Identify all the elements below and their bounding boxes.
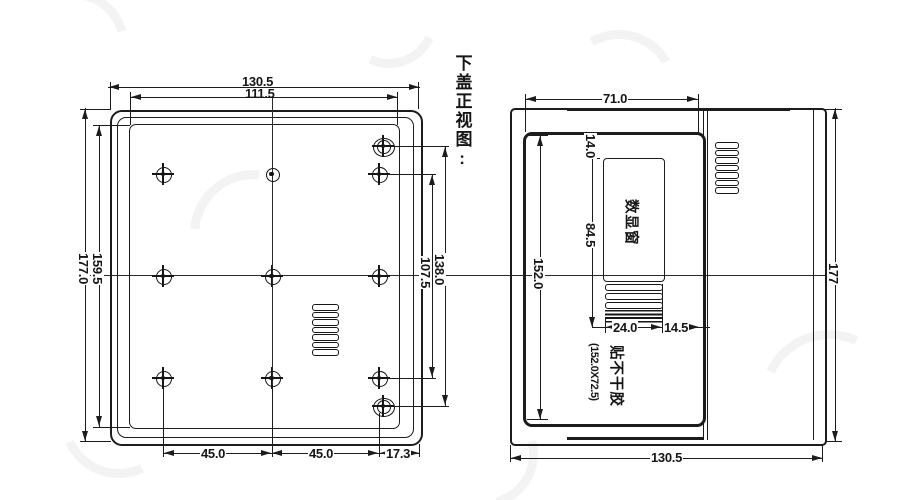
arrowhead — [272, 450, 282, 456]
arrowhead — [368, 450, 378, 456]
arrowhead — [689, 324, 699, 330]
arrowhead — [442, 147, 448, 157]
dim-overall-width-label: 130.5 — [650, 451, 683, 464]
vent-slot — [715, 150, 739, 157]
dim-window-width-label: 24.0 — [612, 321, 638, 334]
arrowhead — [511, 455, 521, 461]
extension-line — [527, 419, 548, 420]
extension-line — [392, 406, 449, 407]
right-edge-inner-line — [813, 110, 814, 440]
arrowhead — [96, 126, 102, 136]
arrowhead — [832, 431, 838, 441]
dim-panel-height-label: 152.0 — [532, 257, 545, 290]
dim-top-label: 71.0 — [602, 92, 628, 105]
panel-divider-line — [707, 110, 708, 440]
arrowhead — [96, 416, 102, 426]
vent-slot — [715, 165, 739, 172]
extension-line — [419, 444, 420, 457]
extension-line — [698, 94, 699, 132]
dim-window-offset-label: 14.0 — [584, 133, 597, 159]
extension-line — [163, 385, 164, 457]
vent-slot — [715, 172, 739, 179]
extension-line — [388, 378, 436, 379]
vent-slot — [715, 187, 739, 194]
extension-line — [272, 385, 273, 457]
vent-slot — [605, 293, 663, 300]
vent-slot — [312, 342, 339, 349]
arrowhead — [589, 317, 595, 327]
arrowhead — [526, 96, 536, 102]
extension-line — [822, 445, 823, 462]
arrowhead — [429, 175, 435, 185]
arrowhead — [131, 94, 141, 100]
dim-window-margin-label: 14.5 — [663, 321, 689, 334]
dim-right-outer-label: 138.0 — [433, 253, 446, 286]
arrowhead — [832, 109, 838, 119]
sticker-size-label: (152.0X72.5) — [588, 342, 599, 402]
vent-slot — [312, 312, 339, 319]
vent-slot — [715, 180, 739, 187]
vent-slot — [312, 327, 339, 334]
arrowhead — [164, 450, 174, 456]
drawing-canvas: 下盖正视图: 130.5 111.5 — [0, 0, 900, 500]
dim-bottom-mid-label: 45.0 — [308, 447, 334, 460]
dim-bottom-left-label: 45.0 — [200, 447, 226, 460]
dim-right-inner-label: 107.5 — [419, 256, 432, 289]
arrowhead — [537, 136, 543, 146]
arrowhead — [82, 109, 88, 119]
dim-bottom-right-label: 17.3 — [385, 447, 411, 460]
vent-slot — [312, 349, 339, 356]
bottom-lip — [567, 437, 703, 440]
dim-overall-height-label: 177 — [827, 262, 840, 285]
arrowhead — [651, 324, 661, 330]
arrowhead — [687, 96, 697, 102]
dim-left-outer-label: 177.0 — [77, 252, 90, 285]
top-lip — [567, 108, 790, 111]
dim-left-inner-label: 159.5 — [91, 252, 104, 285]
watermark — [808, 0, 900, 100]
watermark — [326, 0, 452, 82]
vent-slot — [605, 302, 663, 309]
vent-slot — [715, 157, 739, 164]
arrowhead — [387, 94, 397, 100]
arrowhead — [537, 409, 543, 419]
arrowhead — [82, 431, 88, 441]
view-title: 下盖正视图: — [452, 54, 472, 170]
dim-top-inner-label: 111.5 — [244, 87, 276, 100]
arrowhead — [261, 450, 271, 456]
arrowhead — [812, 455, 822, 461]
arrowhead — [409, 84, 419, 90]
vent-slot — [312, 304, 339, 311]
sticker-label: 贴不干胶 — [608, 344, 623, 408]
vent-slot — [312, 334, 339, 341]
display-window-label: 数显窗 — [623, 198, 638, 247]
arrowhead — [442, 395, 448, 405]
arrowhead — [429, 367, 435, 377]
watermark — [0, 0, 148, 118]
vent-slot — [312, 319, 339, 326]
vent-slot — [715, 142, 739, 149]
extension-line — [392, 146, 449, 147]
extension-line — [825, 441, 842, 442]
dim-window-height-label: 84.5 — [584, 222, 597, 248]
vent-slot — [605, 284, 663, 291]
arrowhead — [109, 84, 119, 90]
